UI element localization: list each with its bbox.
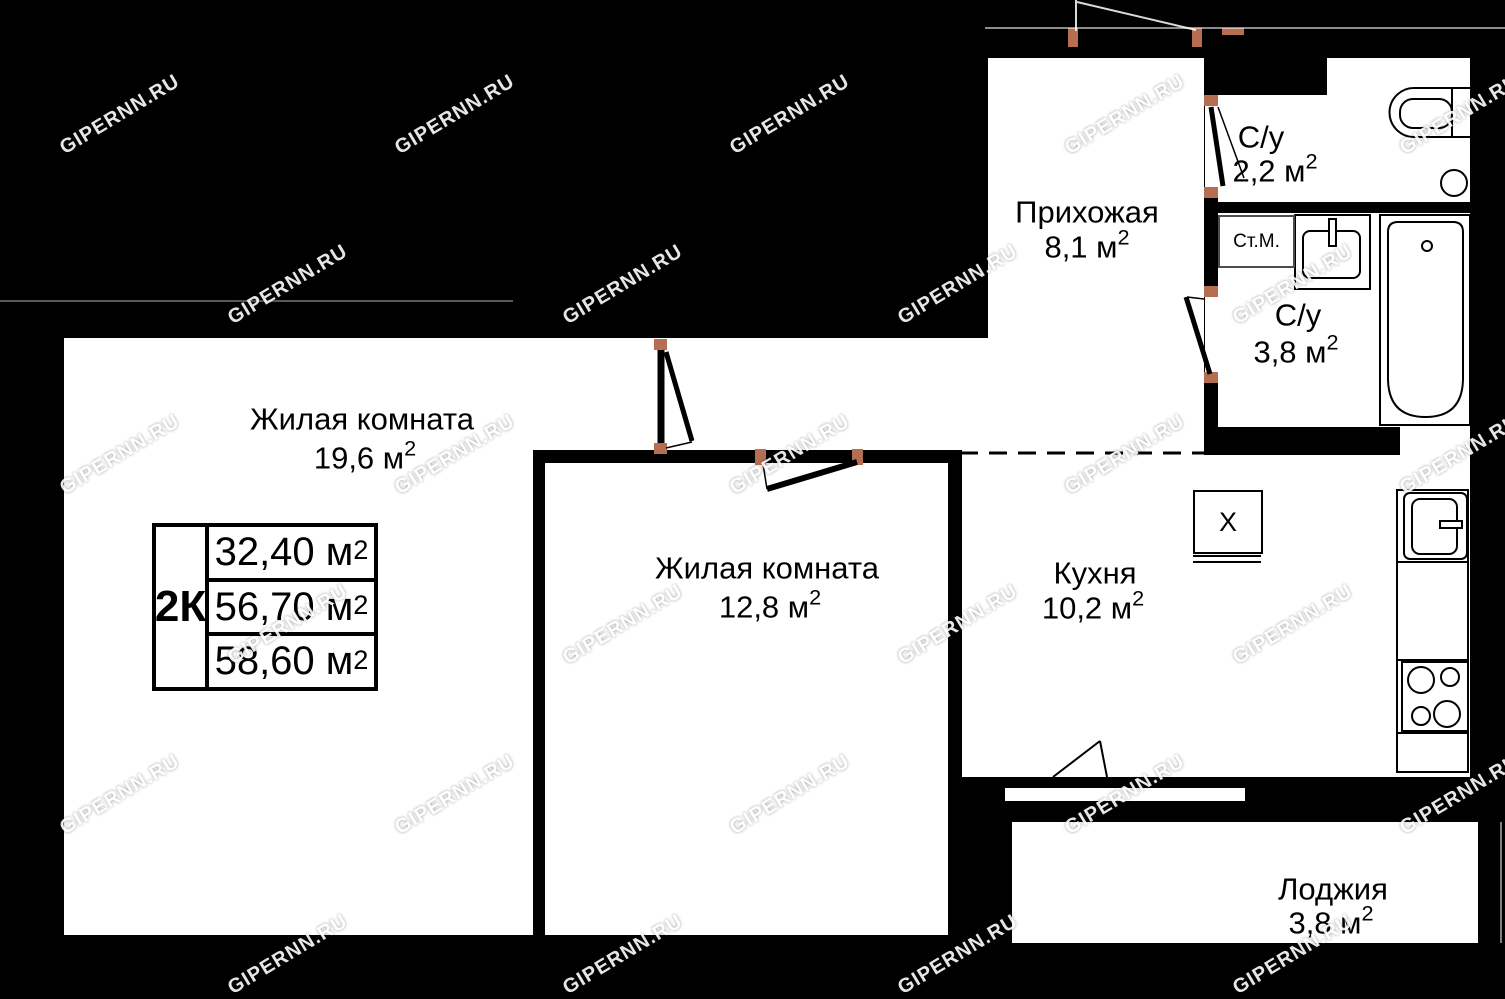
watermark: GIPERNN.RU	[224, 240, 352, 330]
kitchen-sink-box: X	[1193, 490, 1263, 554]
apartment-type-label: 2К	[156, 527, 209, 687]
jamb-living2-door-right	[852, 449, 863, 465]
wall-bathroom-large-bottom	[1204, 427, 1400, 455]
jamb-living1-door-bottom	[654, 443, 667, 454]
jamb-entrance-side	[1222, 28, 1244, 35]
watermark: GIPERNN.RU	[559, 240, 687, 330]
jamb-bathroom-small-bottom	[1204, 187, 1218, 198]
bathroom-kitchen-connector-floor	[1400, 425, 1470, 490]
loggia-area: 3,8 м2	[1288, 908, 1373, 939]
living-area-value: 32,40 м2	[209, 527, 374, 578]
living-room-1-name: Жилая комната	[250, 404, 474, 435]
wall-bathroom-large-1	[1204, 383, 1218, 427]
entrance-door-swing	[1077, 2, 1196, 30]
wall-living2-left	[533, 450, 545, 935]
door-gap-bathroom-large	[1205, 297, 1218, 372]
living-room-2-floor	[545, 463, 948, 935]
jamb-bathroom-large-bottom	[1204, 372, 1218, 383]
bathroom-small-name: С/у	[1238, 122, 1285, 153]
total-area-value: 58,60 м2	[209, 632, 374, 687]
wall-living2-right	[948, 450, 962, 935]
jamb-entrance-left	[1068, 28, 1078, 47]
hallway-name: Прихожая	[1015, 197, 1159, 228]
jamb-entrance-right	[1192, 28, 1202, 47]
washing-machine-label: Ст.М.	[1233, 231, 1280, 253]
area-summary-table: 2К 32,40 м2 56,70 м2 58,60 м2	[152, 523, 378, 691]
kitchen-area: 10,2 м2	[1042, 593, 1144, 624]
floor-plan: Ст.М. X Жилая комната 19,6 м2 Жилая комн…	[0, 0, 1505, 999]
watermark: GIPERNN.RU	[726, 70, 854, 160]
corridor-floor	[660, 338, 988, 452]
wall-living2-top	[533, 450, 962, 463]
wall-bathroom-small-1	[1204, 58, 1218, 96]
loggia-floor	[1012, 822, 1478, 943]
watermark: GIPERNN.RU	[56, 70, 184, 160]
apartment-area-value: 56,70 м2	[209, 578, 374, 633]
bathroom-small-area: 2,2 м2	[1232, 156, 1317, 187]
living-room-1-area: 19,6 м2	[314, 443, 416, 474]
living-room-2-area: 12,8 м2	[719, 592, 821, 623]
window	[1003, 786, 1247, 803]
kitchen-name: Кухня	[1054, 558, 1137, 589]
bathroom-large-name: С/у	[1275, 300, 1322, 331]
area-summary-rows: 32,40 м2 56,70 м2 58,60 м2	[209, 527, 374, 687]
washing-machine: Ст.М.	[1218, 215, 1295, 268]
jamb-bathroom-large-top	[1204, 286, 1218, 297]
watermark: GIPERNN.RU	[391, 70, 519, 160]
jamb-bathroom-small-top	[1204, 95, 1218, 106]
wall-entrance	[985, 28, 1205, 58]
living-room-2-name: Жилая комната	[655, 553, 879, 584]
jamb-living1-door-top	[654, 339, 667, 350]
bathroom-large-area: 3,8 м2	[1253, 337, 1338, 368]
door-gap-bathroom-small	[1205, 106, 1218, 187]
kitchen-sink-label: X	[1219, 507, 1237, 538]
bathroom-small-floor-upper	[1327, 58, 1470, 95]
hallway-area: 8,1 м2	[1044, 232, 1129, 263]
wall-bathroom-separator	[1204, 202, 1470, 213]
jamb-living2-door-left	[755, 449, 766, 465]
